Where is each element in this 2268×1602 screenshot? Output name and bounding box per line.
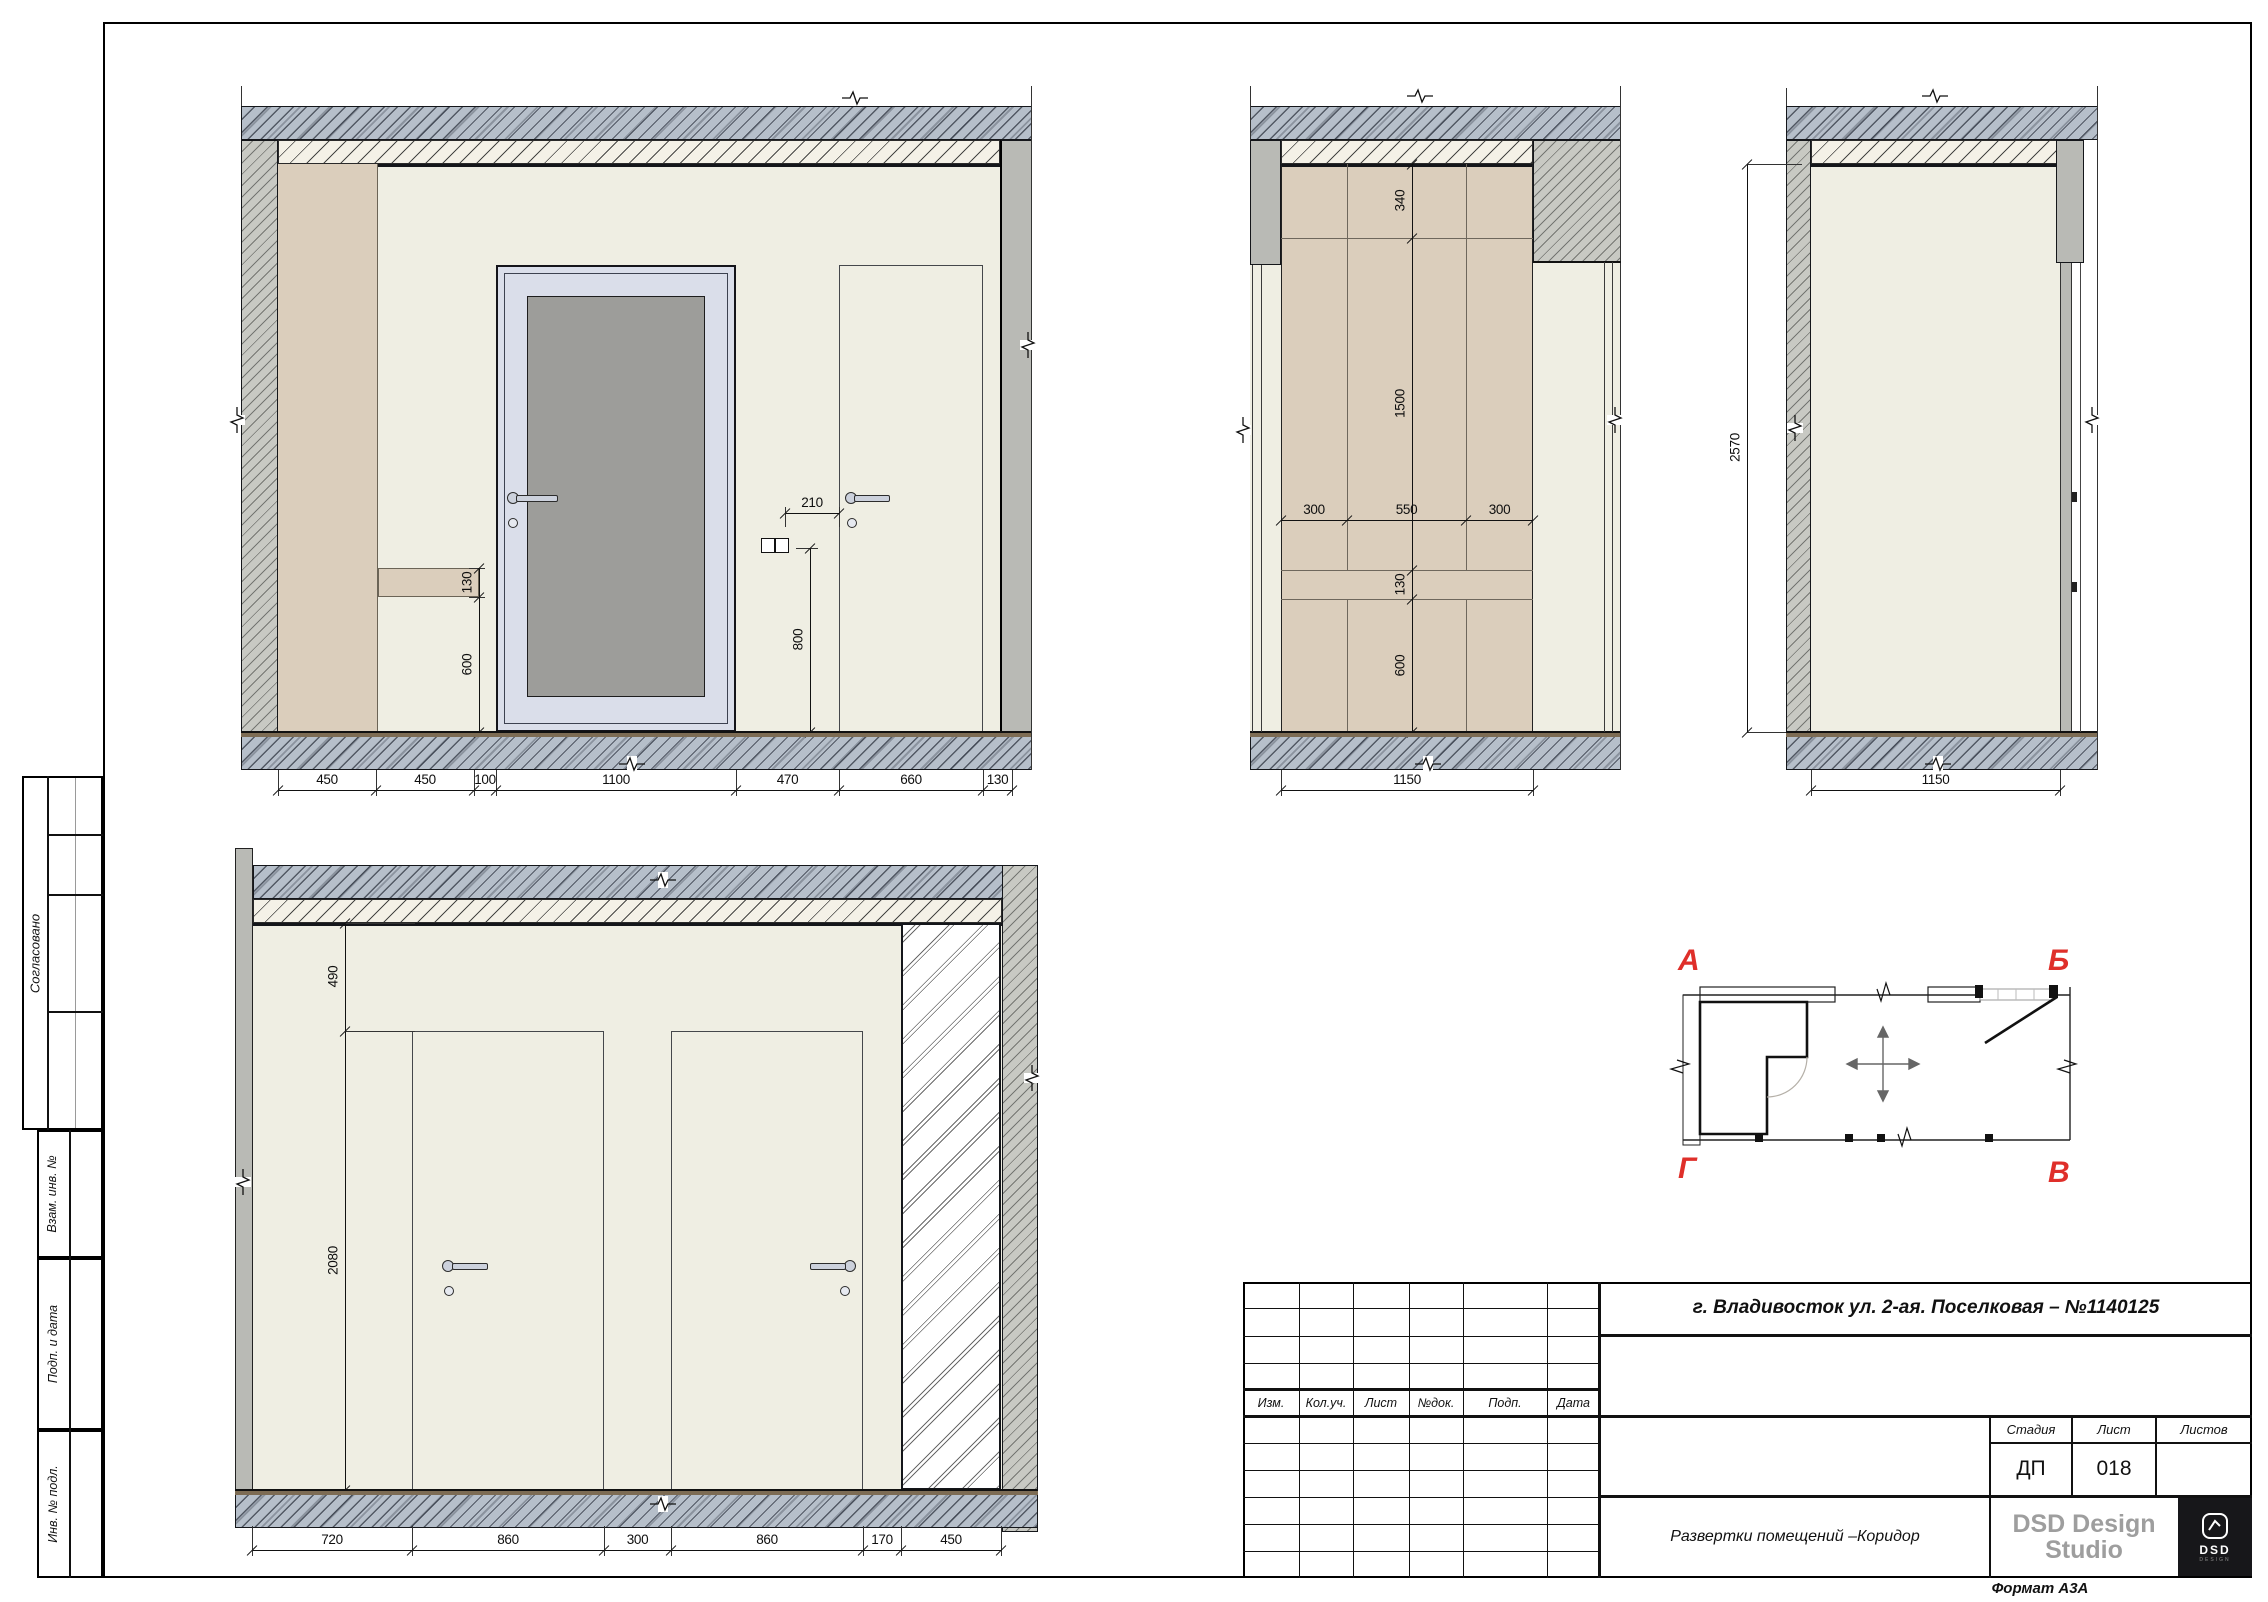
line	[1786, 88, 1787, 106]
dim-label: 130	[460, 542, 475, 622]
dim-label: 1100	[576, 772, 656, 787]
door-handle-icon	[452, 1263, 488, 1270]
break-mark-icon	[1020, 332, 1036, 358]
line	[1243, 1363, 1600, 1364]
stamp-approved-label: Согласовано	[0, 945, 205, 961]
break-mark-icon	[1407, 88, 1433, 104]
elev4-ceiling-finish	[253, 899, 1002, 923]
dim-label: 720	[292, 1532, 372, 1547]
dim-label: 860	[468, 1532, 548, 1547]
switch-symbol-divider	[774, 538, 776, 553]
elev2-left-opening	[1250, 265, 1281, 732]
line	[2071, 1416, 2073, 1497]
dim-label: 300	[1274, 502, 1354, 517]
dim-part	[345, 923, 346, 1490]
cabinet-joint	[1347, 599, 1348, 732]
break-mark-icon	[650, 872, 676, 888]
studio-logo-icon	[2200, 1511, 2230, 1541]
dim-part	[2060, 770, 2061, 796]
sheet-label: Лист	[2072, 1416, 2156, 1442]
dim-label: 660	[871, 772, 951, 787]
dim-part	[1811, 770, 1812, 796]
line	[1031, 86, 1032, 770]
dim-part	[1281, 770, 1282, 796]
line	[1786, 733, 2098, 737]
line	[1252, 265, 1253, 732]
elev3-ceiling-finish	[1811, 140, 2060, 164]
dim-part	[810, 548, 811, 732]
dim-label: 300	[598, 1532, 678, 1547]
break-mark-icon	[235, 1169, 251, 1195]
elev4-wall	[253, 923, 1002, 1490]
line	[1243, 1551, 1600, 1552]
break-mark-icon	[1922, 88, 1948, 104]
doc-title: Развертки помещений –Коридор	[1600, 1497, 1990, 1576]
dim-label: 600	[1393, 625, 1408, 705]
line	[1261, 265, 1262, 732]
sheets-label: Листов	[2156, 1416, 2252, 1442]
line	[1600, 1334, 2252, 1337]
dim-part	[1281, 790, 1533, 791]
break-mark-icon	[1787, 415, 1803, 441]
dim-label: 550	[1367, 502, 1447, 517]
line	[1250, 733, 1621, 737]
plan-corner-v: В	[2048, 1156, 2070, 1190]
break-mark-icon	[1415, 756, 1441, 772]
line	[1989, 1416, 1991, 1578]
elev1-beige-panel	[278, 164, 378, 732]
line	[1547, 1282, 1548, 1578]
dim-part	[736, 770, 737, 796]
break-mark-icon	[619, 756, 645, 772]
elev1-right-wall-section	[1000, 140, 1032, 737]
line	[1243, 1336, 1600, 1337]
dim-label: 130	[1393, 544, 1408, 624]
break-mark-icon	[650, 1496, 676, 1512]
studio-logo-sub: DESIGN	[2199, 1557, 2230, 1563]
stamp-approved-text: Согласовано	[28, 783, 43, 1123]
elev4-ceiling-slab	[253, 865, 1038, 899]
line	[48, 894, 103, 896]
door-handle-icon	[854, 495, 890, 502]
elev1-ceiling-finish	[278, 140, 1000, 164]
rev-header-podp: Подп.	[1463, 1390, 1547, 1415]
dim-label: 470	[748, 772, 828, 787]
line	[47, 776, 49, 1130]
studio-line2: Studio	[2045, 1537, 2123, 1563]
dim-part	[1811, 790, 2060, 791]
line	[1409, 1282, 1410, 1578]
line	[1243, 1443, 1600, 1444]
line	[48, 1011, 103, 1013]
dim-part	[252, 1526, 253, 1556]
elev3-door-edge	[2060, 263, 2072, 732]
line	[69, 1258, 71, 1430]
elev4-door-left	[412, 1031, 604, 1490]
title-address: г. Владивосток ул. 2-ая. Поселковая – №1…	[1600, 1282, 2252, 1334]
break-mark-icon	[2084, 407, 2100, 433]
dim-label: 860	[727, 1532, 807, 1547]
dim-label: 450	[287, 772, 367, 787]
dim-part	[376, 770, 377, 796]
elev4-mirror-panel	[901, 923, 1001, 1490]
elev3-right-pilaster	[2056, 140, 2084, 263]
cabinet-joint	[1466, 599, 1467, 732]
drawing-sheet: А Б Г В 4504501001100470660130 130600 21…	[0, 0, 2268, 1602]
rev-header-kol: Кол.уч.	[1299, 1390, 1353, 1415]
line	[1243, 1497, 1600, 1498]
dim-part	[839, 770, 840, 796]
dim-label: 170	[842, 1532, 922, 1547]
stage-value: ДП	[1990, 1443, 2072, 1495]
rev-header-izm: Изм.	[1243, 1390, 1299, 1415]
plan-corner-g: Г	[1678, 1152, 1696, 1186]
line	[1243, 1308, 1600, 1309]
dim-label: 490	[326, 937, 341, 1017]
dim-label: 100	[445, 772, 525, 787]
line	[1990, 1442, 2252, 1444]
dim-label: 340	[1393, 161, 1408, 241]
break-mark-icon	[1607, 407, 1623, 433]
line	[69, 1430, 71, 1578]
line	[69, 1130, 71, 1258]
stage-label: Стадия	[1990, 1416, 2072, 1442]
line	[2072, 582, 2077, 592]
studio-wordmark: DSD Design Studio	[1990, 1497, 2178, 1576]
dim-label: 130	[958, 772, 1038, 787]
dim-part	[785, 513, 839, 514]
line	[1243, 1470, 1600, 1471]
dim-label: 2080	[326, 1220, 341, 1300]
dim-label: 600	[460, 624, 475, 704]
dim-label: 300	[1460, 502, 1540, 517]
line	[1243, 1524, 1600, 1525]
dim-part	[345, 1031, 415, 1032]
dim-part	[1001, 1526, 1002, 1556]
dim-part	[1747, 164, 1802, 165]
elev3-wall	[1811, 164, 2060, 732]
line	[75, 778, 76, 1128]
line	[1604, 262, 1605, 732]
dim-label: 1150	[1367, 772, 1447, 787]
line	[235, 1491, 1038, 1495]
dim-part	[412, 1526, 413, 1556]
dim-part	[1412, 164, 1413, 732]
break-mark-icon	[842, 90, 868, 106]
break-mark-icon	[229, 407, 245, 433]
rev-header-list: Лист	[1353, 1390, 1409, 1415]
door-keyhole-icon	[847, 518, 857, 528]
elev3-ceiling-slab	[1786, 106, 2098, 140]
dim-label: 210	[772, 495, 852, 510]
elev2-wall-over-opening	[1533, 140, 1621, 262]
dim-part	[1747, 164, 1748, 732]
studio-line1: DSD Design	[2012, 1511, 2155, 1537]
line	[241, 733, 1032, 737]
door-keyhole-icon	[508, 518, 518, 528]
dim-part	[479, 568, 480, 732]
line	[1612, 262, 1613, 732]
line	[1463, 1282, 1464, 1578]
sheet-value: 018	[2072, 1443, 2156, 1495]
break-mark-icon	[1235, 417, 1251, 443]
elev4-floor-slab	[235, 1494, 1038, 1528]
dim-part	[1281, 520, 1533, 521]
line	[241, 86, 242, 106]
line	[48, 834, 103, 836]
dim-label: 450	[911, 1532, 991, 1547]
stamp-zam-label: Взам. инв. №	[45, 1138, 61, 1250]
dim-part	[345, 923, 415, 924]
plan-corner-a: А	[1678, 944, 1700, 978]
elev4-right-wall-section	[1002, 865, 1038, 1532]
line	[1250, 86, 1251, 140]
dim-part	[278, 770, 279, 796]
line	[1598, 1282, 1601, 1578]
door-handle-icon	[516, 495, 558, 502]
door-keyhole-icon	[840, 1286, 850, 1296]
break-mark-icon	[1925, 756, 1951, 772]
break-mark-icon	[1024, 1065, 1040, 1091]
line	[2080, 263, 2081, 732]
elev2-ceiling-slab	[1250, 106, 1621, 140]
elev1-ceiling-slab	[241, 106, 1032, 140]
dim-part	[252, 1550, 1001, 1551]
line	[1243, 1415, 2252, 1418]
plan-corner-b: Б	[2048, 944, 2069, 978]
line	[2072, 492, 2077, 502]
dim-part	[278, 790, 1012, 791]
line	[1299, 1282, 1300, 1578]
rev-header-data: Дата	[1547, 1390, 1600, 1415]
elev2-left-pier	[1250, 140, 1281, 265]
dim-label: 2570	[1728, 408, 1743, 488]
dim-part	[1533, 770, 1534, 796]
dim-label: 800	[791, 600, 806, 680]
rev-header-dok: №док.	[1409, 1390, 1463, 1415]
line	[1353, 1282, 1354, 1578]
studio-logo: DSD DESIGN	[2178, 1497, 2252, 1576]
line	[2155, 1416, 2157, 1497]
studio-logo-text: DSD	[2199, 1543, 2230, 1557]
dim-label: 1500	[1393, 364, 1408, 444]
sheets-value	[2156, 1443, 2252, 1495]
door-keyhole-icon	[444, 1286, 454, 1296]
elev4-door-right	[671, 1031, 863, 1490]
format-label: Формат А3А	[1960, 1580, 2120, 1597]
dim-label: 1150	[1896, 772, 1976, 787]
stamp-inv-label: Инв. № подл.	[46, 1439, 62, 1569]
stamp-podp-label: Подп. и дата	[46, 1269, 62, 1419]
line	[1533, 261, 1621, 263]
door-handle-icon	[810, 1263, 846, 1270]
key-plan	[1655, 935, 2125, 1245]
elev2-right-opening	[1533, 262, 1621, 732]
elev1-left-wall-section	[241, 140, 278, 737]
line	[1243, 1388, 1600, 1391]
